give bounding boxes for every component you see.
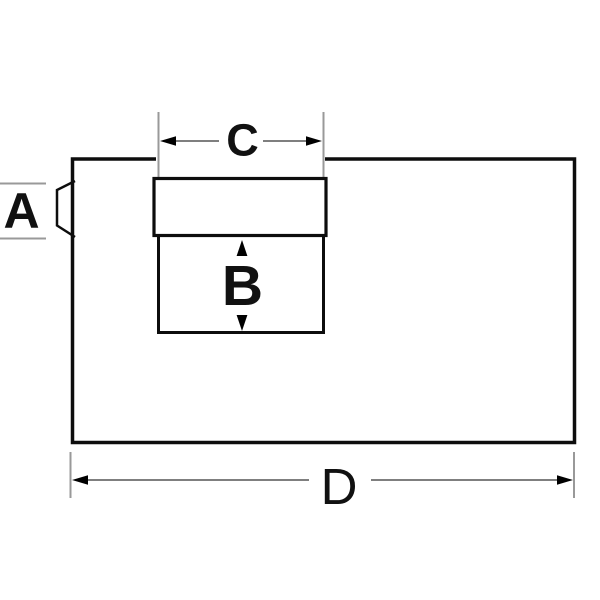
- lock-dimension-diagram: C B A D: [0, 0, 600, 600]
- dim-c-arrow-left-icon: [160, 136, 176, 146]
- dim-a-label: A: [3, 183, 39, 239]
- dim-c-arrow-right-icon: [306, 136, 322, 146]
- dim-b-label: B: [222, 254, 263, 318]
- diagram-canvas: C B A D: [0, 0, 600, 600]
- bolt-bar: [154, 179, 326, 236]
- dim-d-arrow-right-icon: [557, 475, 573, 485]
- dim-d-label: D: [321, 458, 358, 515]
- dim-d-arrow-left-icon: [72, 475, 88, 485]
- dim-c-label: C: [226, 115, 259, 166]
